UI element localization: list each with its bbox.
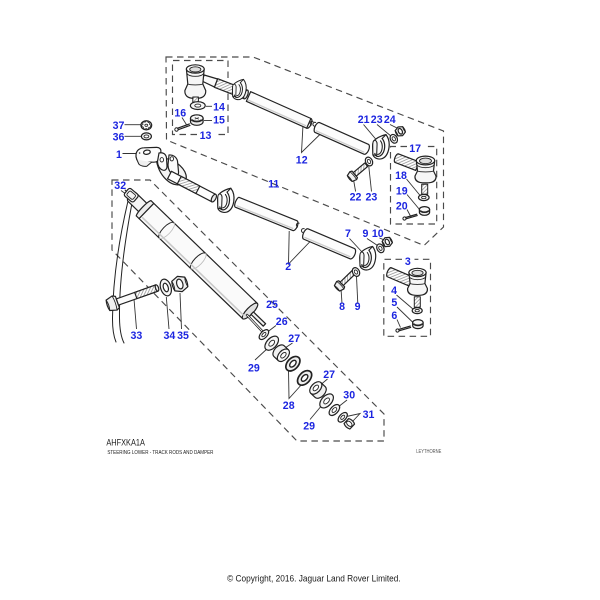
svg-text:29: 29 [248, 363, 260, 375]
svg-text:24: 24 [384, 114, 396, 126]
svg-text:29: 29 [303, 421, 315, 433]
svg-text:19: 19 [396, 185, 408, 197]
svg-text:23: 23 [366, 191, 378, 203]
svg-text:© Copyright, 2016. Jaguar Land: © Copyright, 2016. Jaguar Land Rover Lim… [227, 573, 401, 583]
svg-text:8: 8 [339, 301, 345, 313]
svg-text:2: 2 [285, 261, 291, 273]
svg-text:10: 10 [372, 228, 384, 240]
svg-text:23: 23 [371, 114, 383, 126]
svg-text:15: 15 [213, 115, 225, 127]
svg-text:31: 31 [363, 409, 375, 421]
svg-text:20: 20 [396, 200, 408, 212]
svg-text:7: 7 [345, 228, 351, 240]
svg-text:3: 3 [405, 256, 411, 268]
svg-text:9: 9 [355, 301, 361, 313]
svg-text:13: 13 [200, 130, 212, 142]
svg-text:28: 28 [283, 400, 295, 412]
svg-text:26: 26 [276, 316, 288, 328]
svg-text:30: 30 [343, 390, 355, 402]
svg-text:5: 5 [391, 297, 397, 309]
svg-text:14: 14 [213, 102, 225, 114]
svg-text:STEERING LOWER - TRACK RODS AN: STEERING LOWER - TRACK RODS AND DAMPER [107, 450, 213, 456]
svg-text:1: 1 [116, 149, 122, 161]
svg-text:16: 16 [174, 108, 186, 120]
svg-text:37: 37 [113, 120, 125, 132]
svg-text:LEYTHORNE: LEYTHORNE [416, 449, 442, 455]
svg-text:17: 17 [409, 143, 421, 155]
svg-text:33: 33 [131, 330, 143, 342]
svg-text:35: 35 [177, 330, 189, 342]
svg-text:AHFXKA1A: AHFXKA1A [106, 438, 145, 449]
svg-text:27: 27 [288, 333, 300, 345]
svg-text:27: 27 [323, 369, 335, 381]
svg-text:36: 36 [113, 132, 125, 144]
svg-text:32: 32 [114, 180, 126, 192]
svg-text:25: 25 [266, 299, 278, 311]
svg-text:12: 12 [296, 154, 308, 166]
svg-text:18: 18 [395, 170, 407, 182]
svg-text:21: 21 [358, 114, 370, 126]
svg-text:9: 9 [362, 228, 368, 240]
svg-text:11: 11 [268, 179, 279, 191]
svg-text:6: 6 [391, 310, 397, 322]
svg-text:34: 34 [164, 330, 176, 342]
svg-text:22: 22 [350, 191, 362, 203]
svg-text:4: 4 [391, 285, 397, 297]
